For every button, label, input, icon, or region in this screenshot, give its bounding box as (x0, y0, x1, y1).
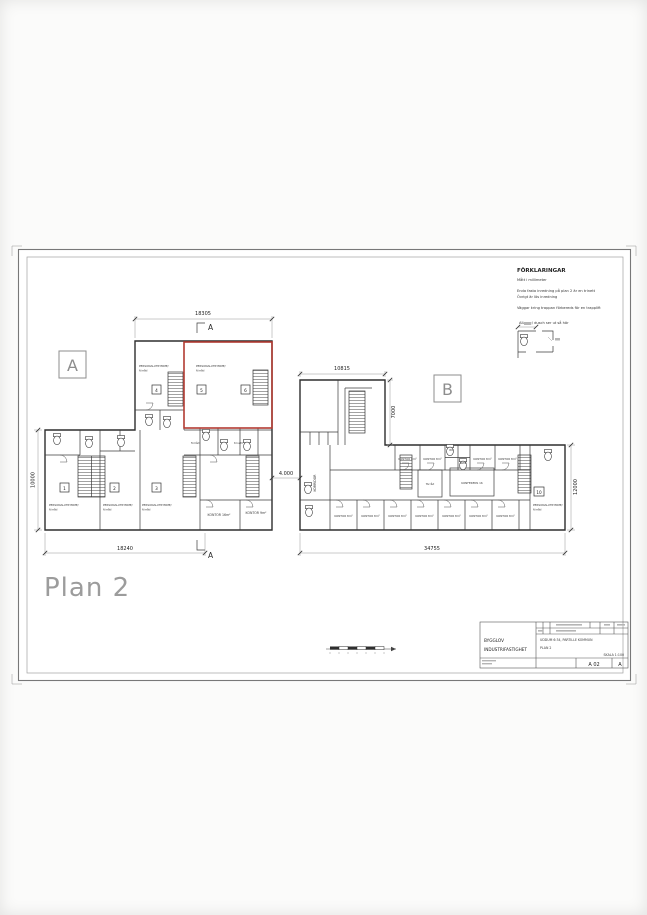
titleblock-scale: SKALA 1:100 (604, 653, 624, 657)
building-b-letter: B (442, 380, 453, 399)
room-label: PERSONALUTRYMME/ (533, 503, 563, 507)
section-letter-top: A (208, 323, 214, 332)
room-label: förråd (49, 507, 58, 512)
dim-a-bottom: 18240 (117, 546, 133, 552)
legend-title: FÖRKLARINGAR (517, 267, 566, 274)
titleblock-client-1: BYGGLOV (484, 638, 504, 643)
dim-b-right: 12000 (573, 479, 579, 495)
legend-units-note: Mått i millimeter (517, 277, 547, 282)
room-label: RWC (460, 461, 467, 465)
room-label: KORRIDOR (313, 474, 317, 492)
floorplan-svg: FÖRKLARINGAR Mått i millimeter Enda fast… (0, 0, 647, 915)
legend-fixed-note-1: Enda fasta inredning på plan 2 är en tri… (517, 288, 596, 293)
room-label: trinett (234, 441, 244, 445)
room-label: KONTOR 8m² (361, 514, 379, 518)
titleblock-client-2: INDUSTRIFASTIGHET (484, 647, 527, 652)
room-label: KONTOR 8m² (498, 457, 516, 461)
dim-a-left: 10000 (31, 472, 37, 488)
room-label: PERSONALUTRYMME/ (196, 364, 226, 368)
room-label: KONTOR 8m² (442, 514, 460, 518)
building-b-marker: B (434, 375, 461, 402)
sheet-frame (12, 246, 636, 684)
unit-number: 5 (200, 388, 203, 393)
room-label: förråd (191, 440, 200, 445)
room-label: KONTOR 9m² (246, 511, 268, 515)
room-label: KONTOR 16m² (208, 513, 232, 517)
dim-b-wing: 7000 (391, 406, 397, 419)
room-label: KONFERENS 16 (461, 481, 483, 485)
room-label: förråd (426, 481, 435, 486)
dim-b-top: 10815 (334, 366, 350, 372)
unit-number: 2 (113, 486, 116, 491)
room-label: KONTOR 8m² (334, 514, 352, 518)
room-label: KONTOR 8m² (496, 514, 514, 518)
drawing-page: FÖRKLARINGAR Mått i millimeter Enda fast… (0, 0, 647, 915)
titleblock-drawing-name: PLAN 2 (540, 646, 551, 650)
plan-title: Plan 2 (44, 573, 130, 603)
room-label: KONTOR 8m² (469, 514, 487, 518)
unit-number: 10 (536, 490, 542, 495)
room-label: WC (449, 448, 454, 452)
room-label: förråd (103, 507, 112, 512)
room-label: PERSONALUTRYMME/ (142, 503, 172, 507)
legend-fixed-note-2: Övrigt är lös inredning (517, 294, 557, 299)
room-label: förråd (533, 507, 542, 512)
titleblock-project: UDDUM 6:34, PARTILLE KOMMUN (540, 638, 593, 642)
building-a-marker: A (59, 351, 86, 378)
dim-a-top: 18305 (195, 311, 211, 317)
dim-b-bottom: 34755 (424, 546, 440, 552)
room-label: KONTOR 8m² (388, 514, 406, 518)
unit-number: 4 (155, 388, 158, 393)
room-label: PERSONALUTRYMME/ (139, 364, 169, 368)
room-label: KONTOR 8m² (473, 457, 491, 461)
room-label: PERSONALUTRYMME/ (49, 503, 79, 507)
titleblock-revision: A (618, 662, 622, 668)
room-label: PERSONALUTRYMME/ (103, 503, 133, 507)
section-letter-bottom: A (208, 551, 214, 560)
titleblock-drawing-no: A 02 (588, 662, 599, 668)
legend-stairs-note: Väggar kring trappan förbereds för en tr… (517, 306, 601, 310)
dim-gap: 4.000 (279, 471, 293, 477)
room-label: förråd (196, 368, 205, 373)
room-label: KONTOR 8m² (398, 457, 416, 461)
room-label: förråd (142, 507, 151, 512)
room-label: KONTOR 8m² (415, 514, 433, 518)
room-label: KONTOR 8m² (423, 457, 441, 461)
unit-number: 3 (155, 486, 158, 491)
unit-number: 1 (63, 486, 66, 491)
building-a-letter: A (67, 356, 78, 375)
room-label: förråd (139, 368, 148, 373)
unit-number: 6 (244, 388, 247, 393)
